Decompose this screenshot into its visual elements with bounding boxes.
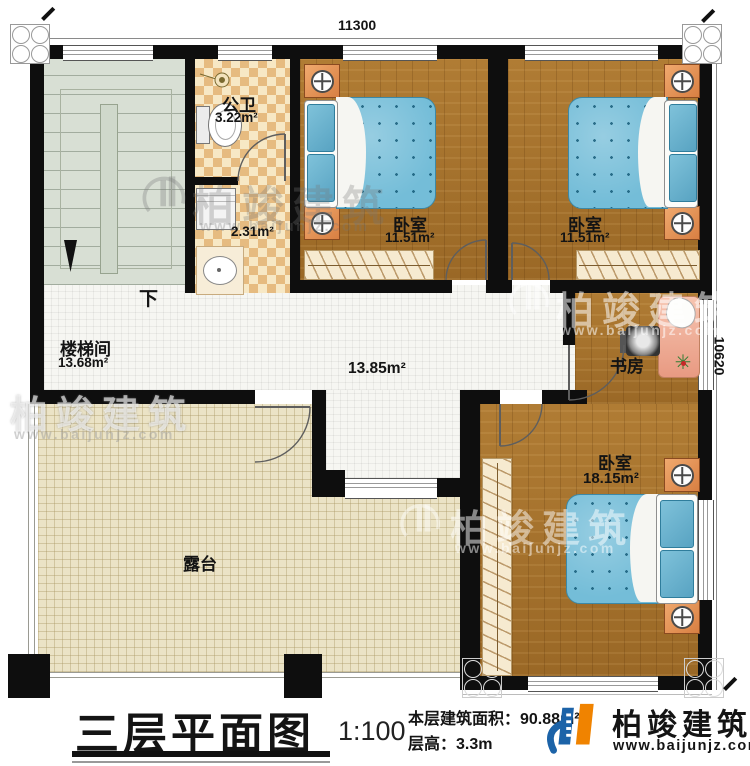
bedroom3-nightstand-bottom [664,600,700,634]
bedroom1-pillow-top [307,104,335,152]
brand-logo-icon [540,698,606,760]
wall-south-bedroom1-a [295,280,452,293]
column-symbol-top-right [682,24,722,64]
bedroom3-pillow-bottom [660,550,694,598]
window-top-bathroom [218,45,272,61]
window-top-stairwell [63,45,153,61]
window-right-bedroom3 [698,500,714,600]
top-dimension-line [30,38,712,39]
window-top-bedroom1 [343,45,437,61]
column-symbol-bottom-right [684,658,724,698]
watermark-logo-icon [396,496,448,548]
room-label-terrace: 露台 [183,550,217,575]
terrace-column-right [284,654,322,698]
lamp-icon [671,70,694,93]
wall-hall-ext-sw [312,470,345,497]
stairs-direction-label: 下 [139,284,158,311]
bath-sink-drain [217,268,221,272]
window-bedroom3-south [528,676,658,692]
wall-bedroom3-north-a [480,390,500,404]
hall-extension-floor [326,390,460,478]
room-area-bedroom1: 11.51m² [385,230,435,245]
watermark-logo-icon [138,168,194,224]
corner-tick-bottom-right [723,677,737,691]
lamp-icon [671,464,694,487]
room-area-bedroom3: 18.15m² [583,470,639,487]
plan-floor-height: 层高：3.3m [408,730,492,754]
room-area-bathroom: 3.22m² [215,110,258,125]
title-underline-thick [72,751,330,757]
corner-tick-top-left [41,7,55,21]
wall-bedroom3-north-b [542,390,587,404]
top-dimension-label: 11300 [338,17,376,33]
room-area-laundry: 2.31m² [231,224,274,239]
stairs-rail [100,104,118,274]
watermark-url: www.baijunjz.com [455,540,616,556]
bedroom2-pillow-top [669,104,697,152]
watermark-logo-icon [505,274,557,326]
floor-plan-page: 11300 10620 [0,0,750,766]
brand-website: www.baijunjz.com [613,738,750,754]
bedroom3-wardrobe [482,458,512,676]
bedroom2-nightstand-bottom [664,206,700,240]
watermark-url: www.baijunjz.com [560,322,721,338]
room-area-hall: 13.85m² [348,360,406,378]
bedroom2-wardrobe [576,250,700,280]
watermark-url: www.baijunjz.com [200,218,369,235]
bedroom2-nightstand-top [664,64,700,98]
room-area-stairwell: 13.68m² [58,355,108,370]
watermark-url: www.baijunjz.com [14,426,175,442]
lamp-icon [671,212,694,235]
window-top-bedroom2 [525,45,658,61]
wall-bedroom1-bedroom2 [488,59,508,280]
bedroom3-pillow-top [660,500,694,548]
bedroom3-bed-sheet [630,494,658,602]
lamp-icon [311,70,334,93]
terrace-rail-bottom-inner [28,677,460,678]
bedroom1-wardrobe [304,250,434,280]
title-underline-thin [72,761,330,763]
terrace-column-left [8,654,50,698]
plan-scale: 1:100 [338,716,406,747]
terrace-rail-left-outer [28,404,29,672]
bedroom3-nightstand-top [664,458,700,492]
terrace-rail-left-inner [34,404,35,672]
room-area-bedroom2: 11.51m² [560,230,610,245]
hall-floor [44,285,575,390]
plant-center [681,361,686,366]
corner-tick-top-right [701,9,715,23]
terrace-rail-bottom-outer [28,672,460,673]
room-label-study: 书房 [610,352,644,377]
bedroom2-bed-sheet [638,97,666,207]
bedroom2-pillow-bottom [669,154,697,202]
wall-left [30,59,44,404]
bedroom1-nightstand-top [304,64,340,98]
column-symbol-top-left [10,24,50,64]
lamp-icon [671,606,694,629]
